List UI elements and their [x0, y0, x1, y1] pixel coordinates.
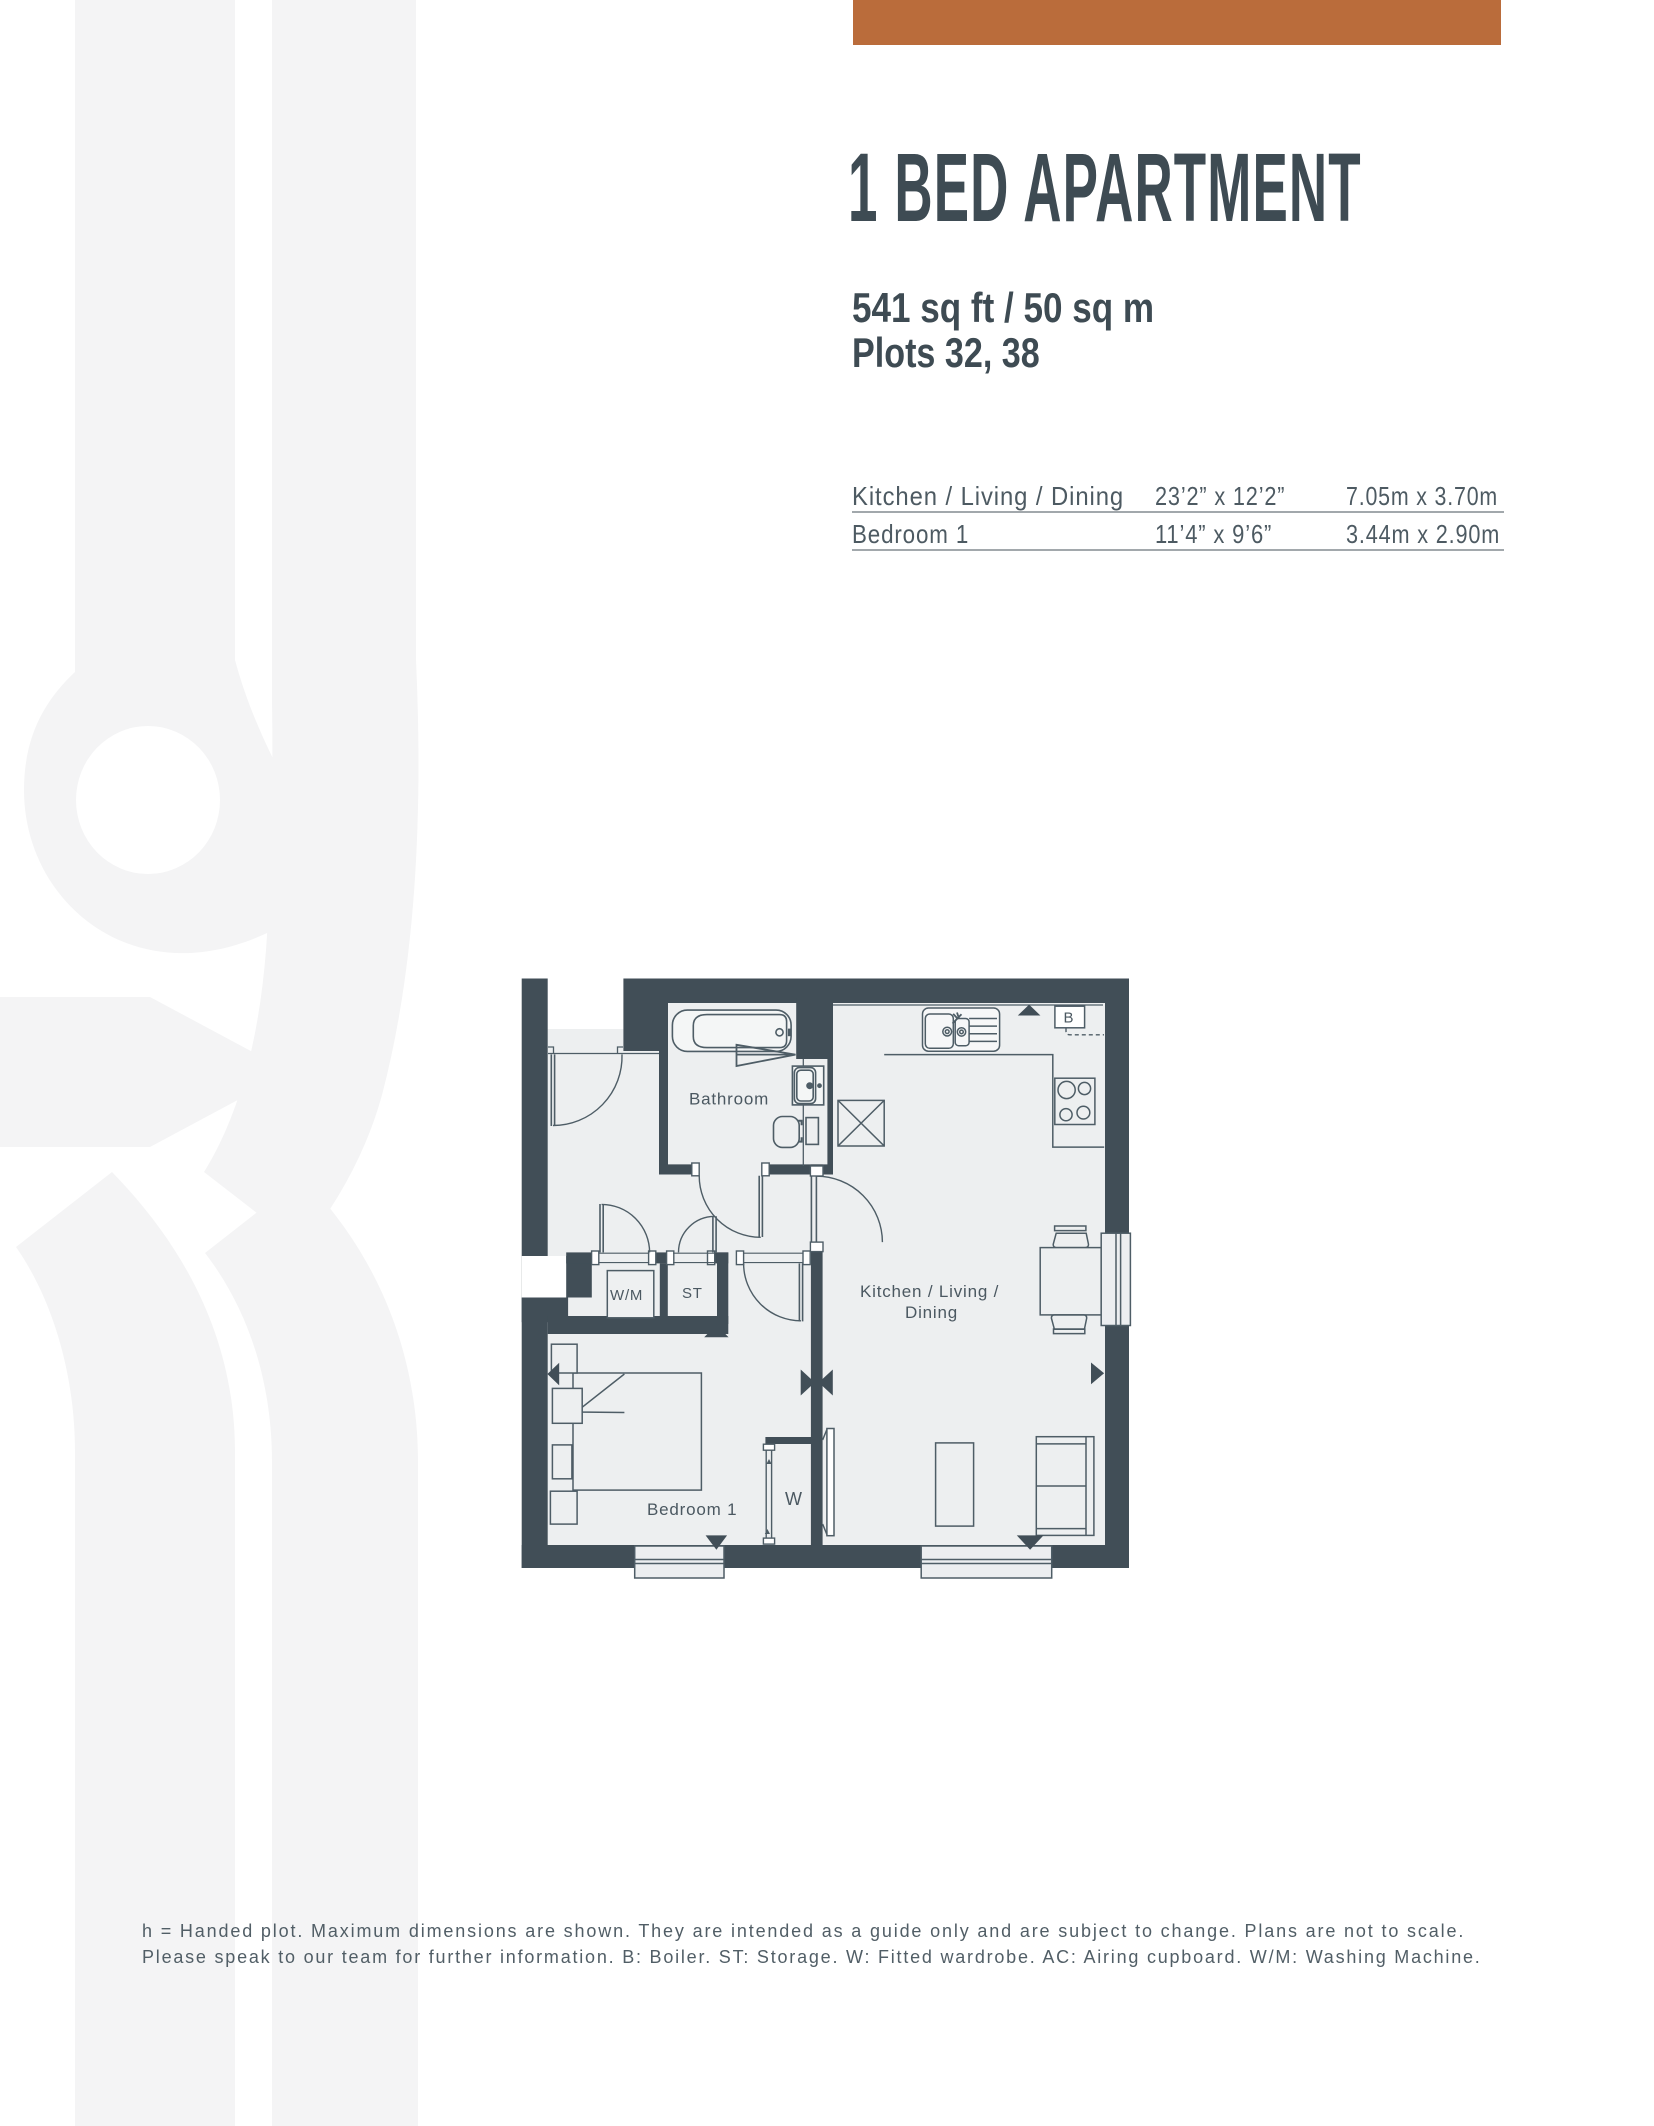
svg-text:Dining: Dining: [905, 1303, 958, 1322]
svg-text:Bathroom: Bathroom: [689, 1090, 769, 1109]
svg-text:Kitchen / Living /: Kitchen / Living /: [860, 1282, 999, 1301]
svg-text:W: W: [785, 1489, 803, 1509]
svg-text:W/M: W/M: [610, 1287, 643, 1304]
svg-text:Bedroom 1: Bedroom 1: [647, 1500, 737, 1519]
svg-text:ST: ST: [682, 1285, 703, 1302]
svg-text:B: B: [1064, 1010, 1075, 1027]
